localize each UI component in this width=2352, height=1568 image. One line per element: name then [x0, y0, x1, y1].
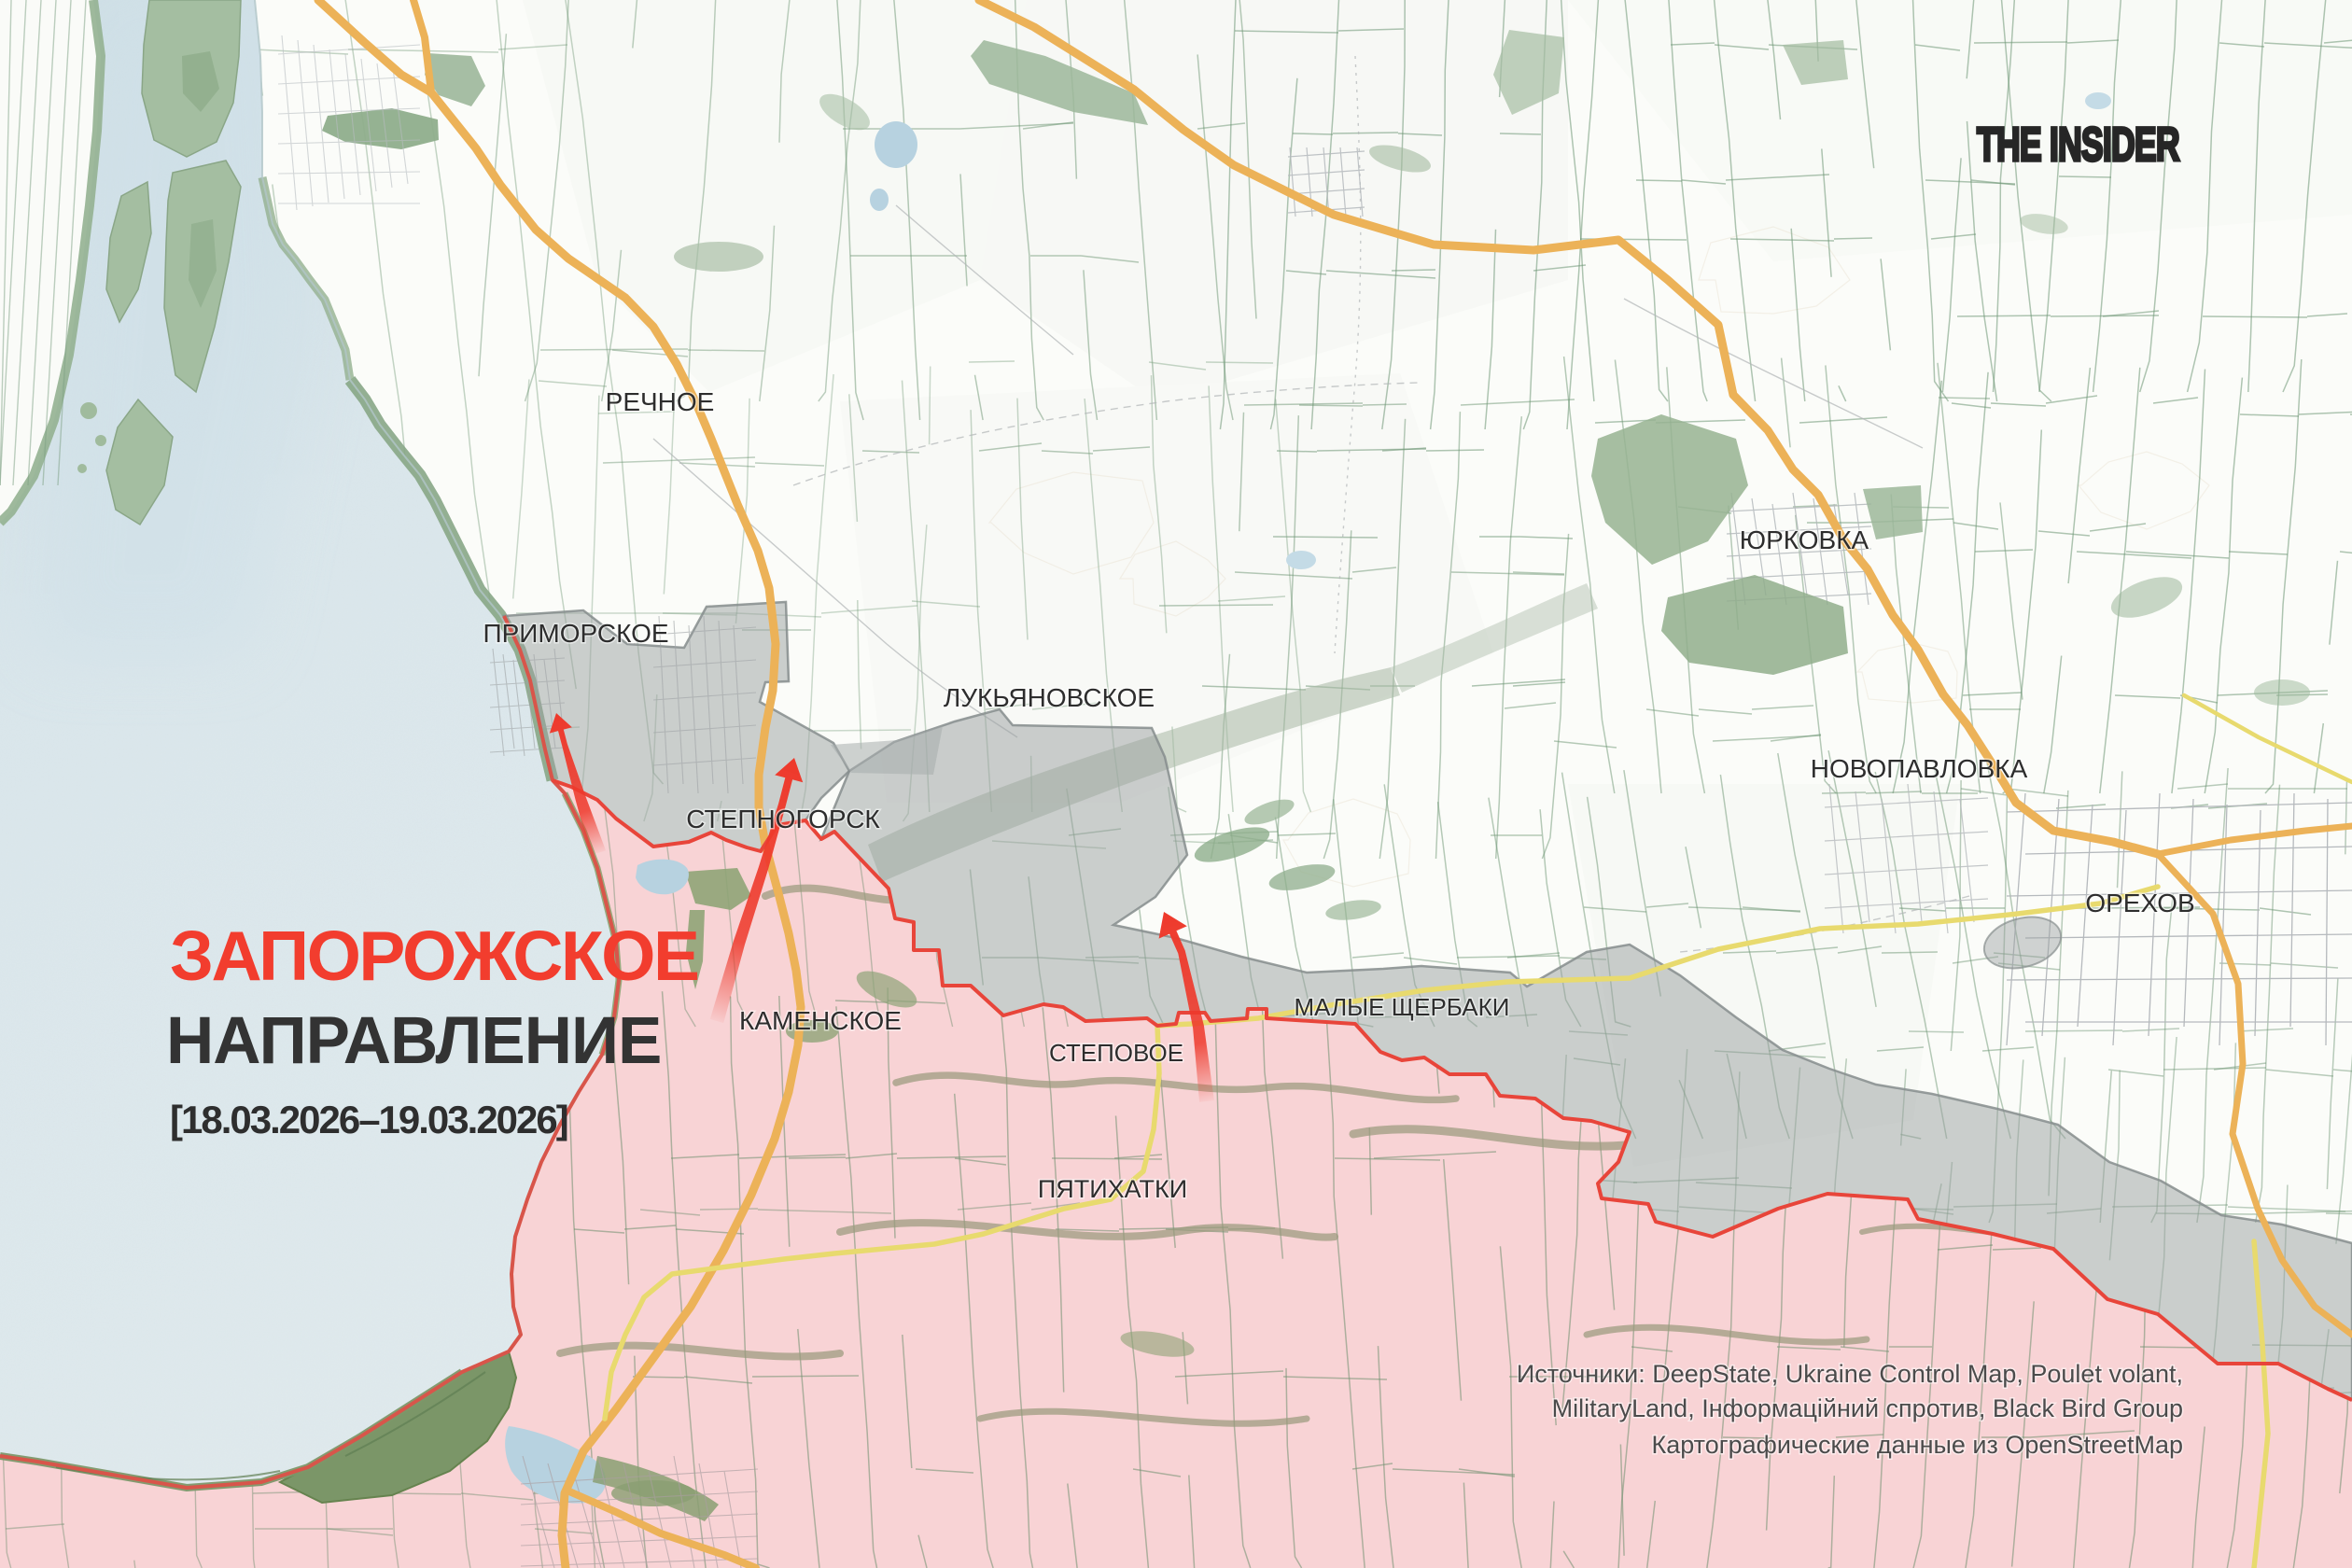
svg-text:СТЕПОВОЕ: СТЕПОВОЕ: [1049, 1039, 1183, 1067]
svg-text:ЛУКЬЯНОВСКОЕ: ЛУКЬЯНОВСКОЕ: [944, 683, 1155, 712]
svg-text:ПЯТИХАТКИ: ПЯТИХАТКИ: [1038, 1175, 1187, 1203]
svg-text:РЕЧНОЕ: РЕЧНОЕ: [606, 387, 715, 416]
svg-text:ЮРКОВКА: ЮРКОВКА: [1740, 525, 1869, 554]
svg-text:ЗАПОРОЖСКОЕ: ЗАПОРОЖСКОЕ: [170, 917, 698, 995]
svg-text:THE INSIDER: THE INSIDER: [1977, 119, 2179, 172]
svg-text:МАЛЫЕ ЩЕРБАКИ: МАЛЫЕ ЩЕРБАКИ: [1295, 993, 1510, 1021]
svg-text:[18.03.2026–19.03.2026]: [18.03.2026–19.03.2026]: [170, 1098, 567, 1141]
svg-text:Картографические данные из Ope: Картографические данные из OpenStreetMap: [1651, 1431, 2183, 1459]
svg-text:ОРЕХОВ: ОРЕХОВ: [2085, 889, 2194, 917]
svg-text:MilitaryLand, Інформаційний сп: MilitaryLand, Інформаційний спротив, Bla…: [1552, 1394, 2183, 1422]
svg-text:НАПРАВЛЕНИЕ: НАПРАВЛЕНИЕ: [166, 1004, 661, 1078]
svg-text:НОВОПАВЛОВКА: НОВОПАВЛОВКА: [1811, 754, 2028, 783]
svg-text:СТЕПНОГОРСК: СТЕПНОГОРСК: [686, 805, 880, 833]
svg-text:Источники: DeepState, Ukraine: Источники: DeepState, Ukraine Control Ma…: [1517, 1360, 2183, 1388]
svg-text:КАМЕНСКОЕ: КАМЕНСКОЕ: [739, 1006, 902, 1035]
svg-text:ПРИМОРСКОЕ: ПРИМОРСКОЕ: [483, 619, 668, 648]
